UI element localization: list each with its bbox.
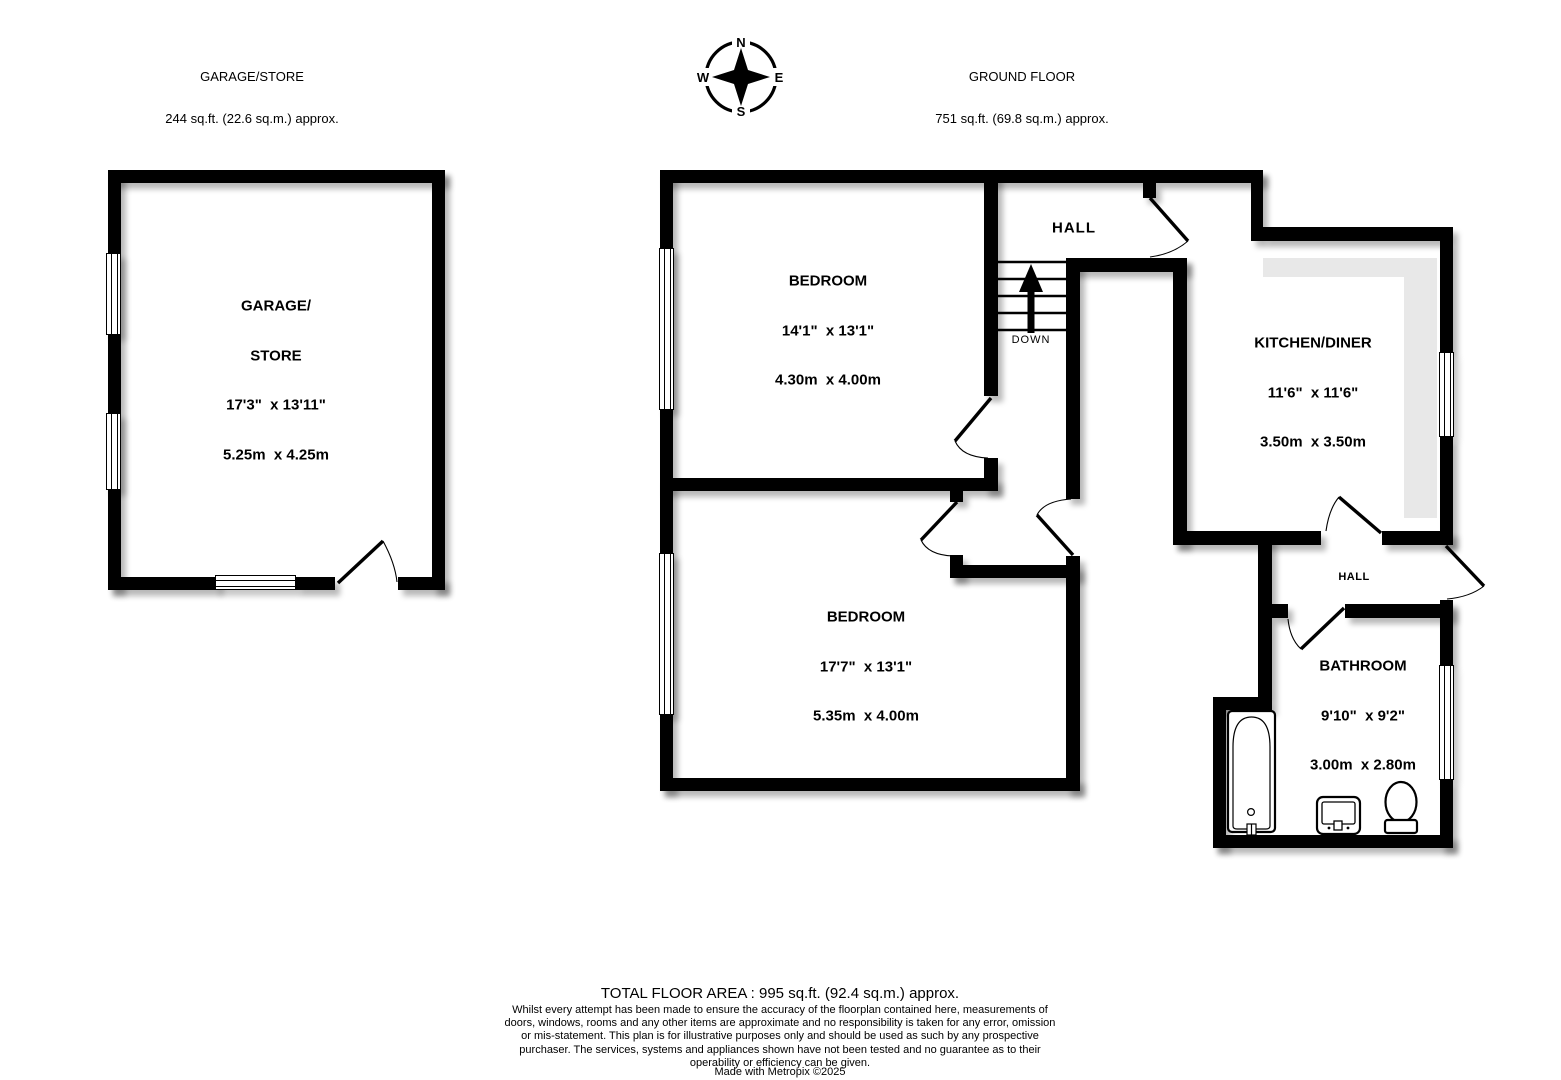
compass-north-label: N (736, 35, 745, 50)
room-name: KITCHEN/DINER (1254, 335, 1372, 352)
compass-south-label: S (737, 104, 746, 119)
total-floor-area: TOTAL FLOOR AREA : 995 sq.ft. (92.4 sq.m… (601, 985, 959, 1002)
kitchen-room-label: KITCHEN/DINER 11'6" x 11'6" 3.50m x 3.50… (1254, 302, 1372, 484)
room-dims-imperial: 17'3" x 13'11" (223, 398, 329, 415)
room-name: GARAGE/ (223, 299, 329, 316)
back-door (1446, 546, 1484, 599)
room-dims-metric: 5.35m x 4.00m (813, 708, 919, 725)
bathtub-icon (1228, 711, 1275, 835)
ground-floor-header: GROUND FLOOR 751 sq.ft. (69.8 sq.m.) app… (935, 42, 1108, 154)
room-dims-metric: 3.00m x 2.80m (1310, 757, 1416, 774)
room-dims-imperial: 14'1" x 13'1" (775, 323, 881, 340)
bedroom1-room-label: BEDROOM 14'1" x 13'1" 4.30m x 4.00m (775, 240, 881, 422)
floorplan-canvas: GARAGE/STORE 244 sq.ft. (22.6 sq.m.) app… (0, 0, 1561, 1080)
garage-header: GARAGE/STORE 244 sq.ft. (22.6 sq.m.) app… (165, 42, 338, 154)
disclaimer-text: Whilst every attempt has been made to en… (502, 1004, 1058, 1070)
garage-room-label: GARAGE/ STORE 17'3" x 13'11" 5.25m x 4.2… (223, 266, 329, 497)
compass-west-label: W (697, 70, 710, 85)
room-name: STORE (223, 348, 329, 365)
compass-rose-icon: N E S W (694, 34, 787, 120)
hall-lower-label: HALL (1338, 571, 1369, 583)
room-dims-metric: 3.50m x 3.50m (1254, 434, 1372, 451)
room-dims-metric: 4.30m x 4.00m (775, 372, 881, 389)
room-name: BEDROOM (813, 609, 919, 626)
room-dims-imperial: 11'6" x 11'6" (1254, 385, 1372, 402)
compass-star (712, 48, 770, 106)
room-dims-imperial: 17'7" x 13'1" (813, 659, 919, 676)
ground-floor-title: GROUND FLOOR (935, 70, 1108, 84)
staircase (998, 262, 1066, 333)
landing-door (1037, 499, 1073, 555)
bedroom2-door (921, 502, 957, 556)
ground-floor-area: 751 sq.ft. (69.8 sq.m.) approx. (935, 112, 1108, 126)
room-dims-imperial: 9'10" x 9'2" (1310, 708, 1416, 725)
plan-vector-overlay: N E S W (0, 0, 1561, 1080)
bedroom1-door (955, 398, 991, 458)
metropix-credit: Made with Metropix ©2025 (714, 1066, 845, 1078)
compass-east-label: E (775, 70, 784, 85)
hall-upper-label: HALL (1052, 220, 1096, 237)
bathroom-room-label: BATHROOM 9'10" x 9'2" 3.00m x 2.80m (1310, 625, 1416, 807)
garage-door (338, 541, 397, 583)
kitchen-hall-door (1326, 497, 1381, 533)
room-name: BATHROOM (1310, 658, 1416, 675)
garage-header-area: 244 sq.ft. (22.6 sq.m.) approx. (165, 112, 338, 126)
stairs-down-label: DOWN (1012, 334, 1051, 346)
hall-kitchen-door (1150, 198, 1188, 257)
room-dims-metric: 5.25m x 4.25m (223, 447, 329, 464)
bedroom2-room-label: BEDROOM 17'7" x 13'1" 5.35m x 4.00m (813, 576, 919, 758)
room-name: BEDROOM (775, 273, 881, 290)
garage-header-title: GARAGE/STORE (165, 70, 338, 84)
